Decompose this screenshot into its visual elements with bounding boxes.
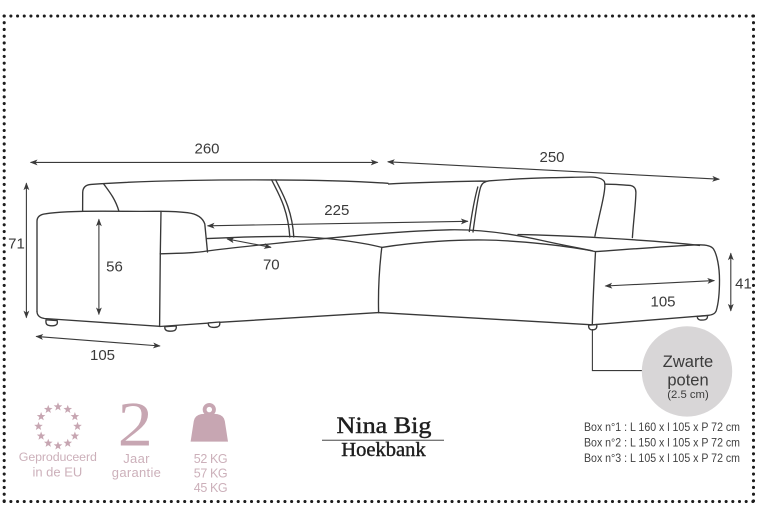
svg-text:Geproduceerd: Geproduceerd <box>19 450 97 464</box>
svg-text:52 KG: 52 KG <box>194 452 227 466</box>
svg-text:105: 105 <box>650 293 675 310</box>
svg-text:(2.5 cm): (2.5 cm) <box>667 389 709 401</box>
svg-text:260: 260 <box>194 141 219 158</box>
svg-text:Hoekbank: Hoekbank <box>341 440 426 461</box>
svg-text:2: 2 <box>118 390 153 460</box>
svg-text:56: 56 <box>106 259 123 276</box>
svg-text:garantie: garantie <box>112 465 161 480</box>
svg-text:105: 105 <box>90 347 115 364</box>
svg-text:in de EU: in de EU <box>32 465 82 480</box>
svg-text:71: 71 <box>8 236 25 253</box>
svg-text:70: 70 <box>263 256 280 273</box>
svg-text:Box n°2 : L 150 x l 105 x P 72: Box n°2 : L 150 x l 105 x P 72 cm <box>584 436 740 450</box>
svg-text:45 KG: 45 KG <box>194 481 227 495</box>
svg-text:Zwarte: Zwarte <box>663 353 713 371</box>
svg-text:57 KG: 57 KG <box>194 467 227 481</box>
svg-text:Jaar: Jaar <box>123 451 150 466</box>
svg-text:Box n°3 : L 105 x l 105 x P 72: Box n°3 : L 105 x l 105 x P 72 cm <box>584 451 740 465</box>
svg-text:250: 250 <box>539 149 564 166</box>
svg-text:41: 41 <box>735 276 752 293</box>
svg-text:Box n°1 : L 160 x l 105 x P 72: Box n°1 : L 160 x l 105 x P 72 cm <box>584 420 740 434</box>
svg-text:poten: poten <box>667 372 708 390</box>
svg-text:Nina Big: Nina Big <box>337 413 433 438</box>
svg-text:225: 225 <box>324 202 349 219</box>
